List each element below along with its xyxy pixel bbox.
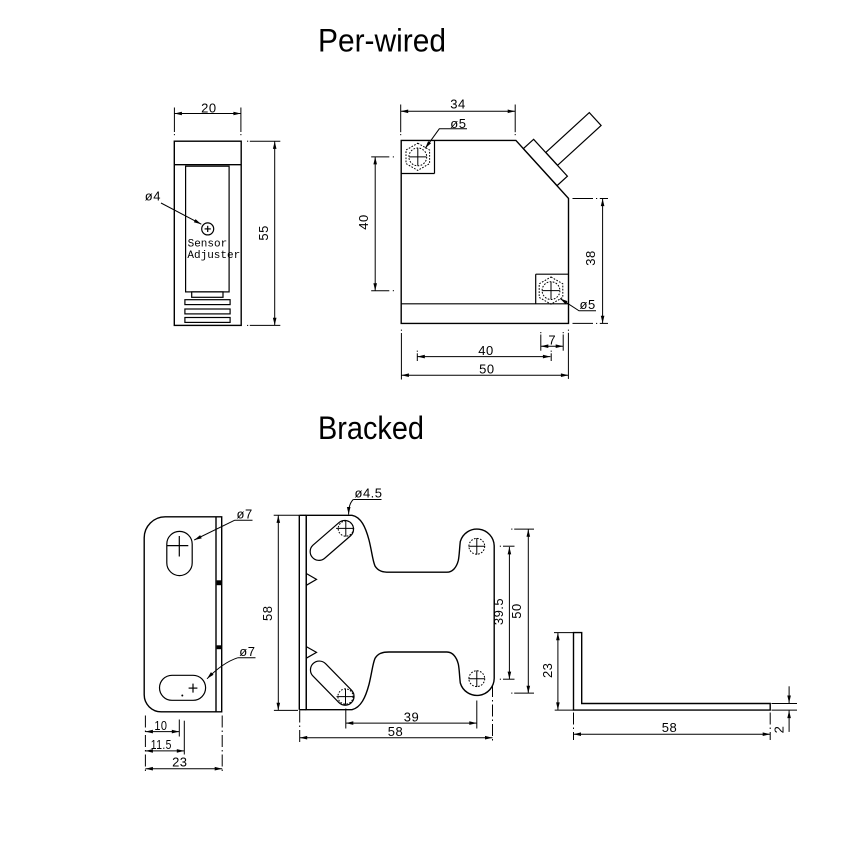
svg-text:Per-wired: Per-wired bbox=[318, 23, 446, 59]
svg-text:Sensor: Sensor bbox=[188, 239, 228, 251]
svg-text:23: 23 bbox=[540, 663, 555, 678]
svg-text:11.5: 11.5 bbox=[151, 737, 172, 752]
svg-text:ø7: ø7 bbox=[239, 644, 255, 659]
svg-text:ø7: ø7 bbox=[237, 506, 253, 521]
svg-text:ø5: ø5 bbox=[450, 116, 466, 131]
svg-text:34: 34 bbox=[450, 97, 465, 112]
svg-text:ø5: ø5 bbox=[580, 297, 596, 312]
svg-text:ø4.5: ø4.5 bbox=[355, 486, 383, 501]
svg-text:7: 7 bbox=[548, 333, 556, 348]
svg-text:2: 2 bbox=[771, 726, 786, 734]
svg-text:38: 38 bbox=[583, 250, 598, 265]
svg-text:39: 39 bbox=[404, 710, 419, 725]
svg-text:23: 23 bbox=[172, 755, 187, 770]
svg-text:58: 58 bbox=[260, 606, 275, 621]
svg-text:55: 55 bbox=[256, 225, 271, 240]
svg-text:40: 40 bbox=[478, 343, 493, 358]
svg-text:Adjuster: Adjuster bbox=[187, 250, 240, 262]
svg-text:40: 40 bbox=[356, 214, 371, 229]
svg-text:Bracked: Bracked bbox=[318, 410, 424, 446]
svg-text:50: 50 bbox=[479, 362, 494, 377]
svg-text:58: 58 bbox=[662, 720, 677, 735]
svg-text:50: 50 bbox=[509, 603, 524, 618]
svg-text:10: 10 bbox=[154, 718, 167, 733]
svg-text:39.5: 39.5 bbox=[491, 598, 506, 625]
svg-text:58: 58 bbox=[388, 724, 403, 739]
svg-text:20: 20 bbox=[201, 101, 216, 116]
svg-text:ø4: ø4 bbox=[145, 189, 161, 204]
